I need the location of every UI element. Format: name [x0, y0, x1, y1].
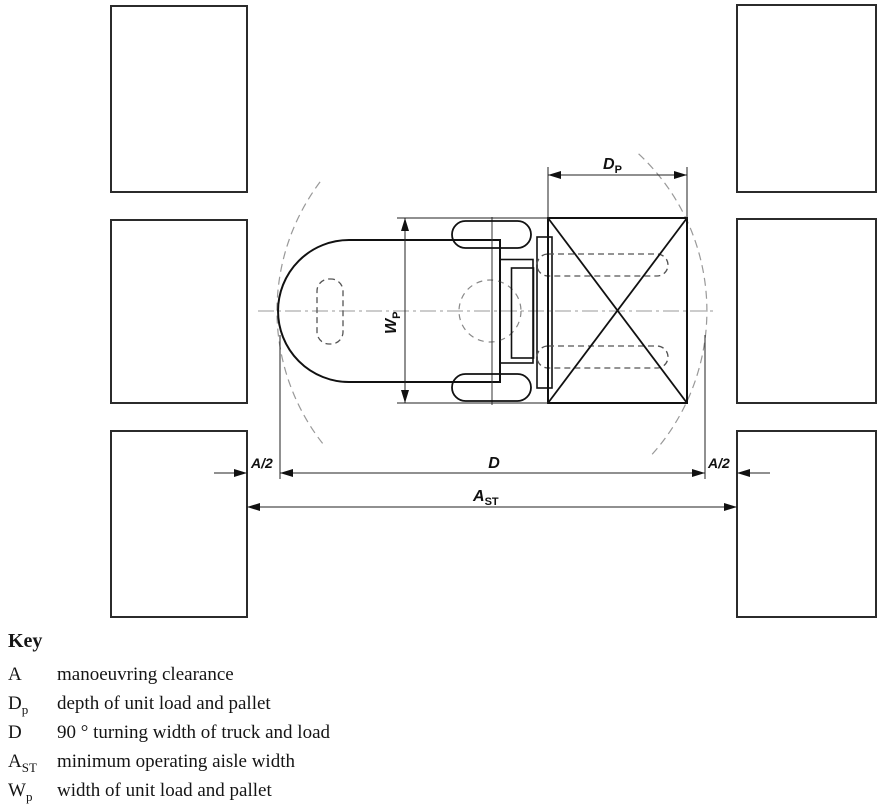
arrowhead — [548, 171, 561, 179]
fork-carriage — [537, 237, 552, 388]
key-legend: Key Amanoeuvring clearanceDpdepth of uni… — [8, 630, 330, 805]
label-a2-left: A/2 — [250, 455, 273, 471]
rack-middle-right — [737, 219, 876, 403]
rack-blocks — [111, 5, 876, 617]
truck-body — [278, 240, 500, 382]
mast-assembly — [500, 237, 552, 388]
label-wp: WP — [383, 312, 403, 334]
rack-bottom-right — [737, 431, 876, 617]
key-symbol: AST — [8, 747, 57, 776]
label-a2-right: A/2 — [707, 455, 730, 471]
key-row: Dpdepth of unit load and pallet — [8, 689, 330, 718]
rack-middle-left — [111, 220, 247, 403]
arrowhead — [724, 503, 737, 511]
key-description: 90 ° turning width of truck and load — [57, 718, 330, 747]
arrowhead — [692, 469, 705, 477]
label-dp: DP — [603, 156, 622, 176]
label-ast: AST — [472, 488, 499, 508]
rack-top-right — [737, 5, 876, 192]
rack-top-left — [111, 6, 247, 192]
key-symbol: A — [8, 660, 57, 689]
key-row: D90 ° turning width of truck and load — [8, 718, 330, 747]
key-description: manoeuvring clearance — [57, 660, 330, 689]
aisle-turning-diagram: DP WP A/2 D A/2 AST — [0, 0, 892, 630]
turning-arc-right — [639, 154, 707, 455]
key-title: Key — [8, 630, 330, 653]
key-description: depth of unit load and pallet — [57, 689, 330, 718]
arrowhead — [280, 469, 293, 477]
arrowhead — [247, 503, 260, 511]
key-symbol: D — [8, 718, 57, 747]
label-d: D — [488, 455, 500, 472]
fork-bottom — [537, 346, 668, 368]
arrowhead — [401, 390, 409, 403]
rack-bottom-left — [111, 431, 247, 617]
mast-inner — [512, 268, 534, 358]
key-rows: Amanoeuvring clearanceDpdepth of unit lo… — [8, 660, 330, 805]
key-symbol: Wp — [8, 776, 57, 805]
key-symbol: Dp — [8, 689, 57, 718]
arrowhead — [401, 218, 409, 231]
key-row: ASTminimum operating aisle width — [8, 747, 330, 776]
key-description: minimum operating aisle width — [57, 747, 330, 776]
arrowhead — [674, 171, 687, 179]
figure-canvas: DP WP A/2 D A/2 AST Key Amanoeuvring cle… — [0, 0, 892, 806]
fork-top — [537, 254, 668, 276]
key-row: Wpwidth of unit load and pallet — [8, 776, 330, 805]
key-description: width of unit load and pallet — [57, 776, 330, 805]
key-row: Amanoeuvring clearance — [8, 660, 330, 689]
